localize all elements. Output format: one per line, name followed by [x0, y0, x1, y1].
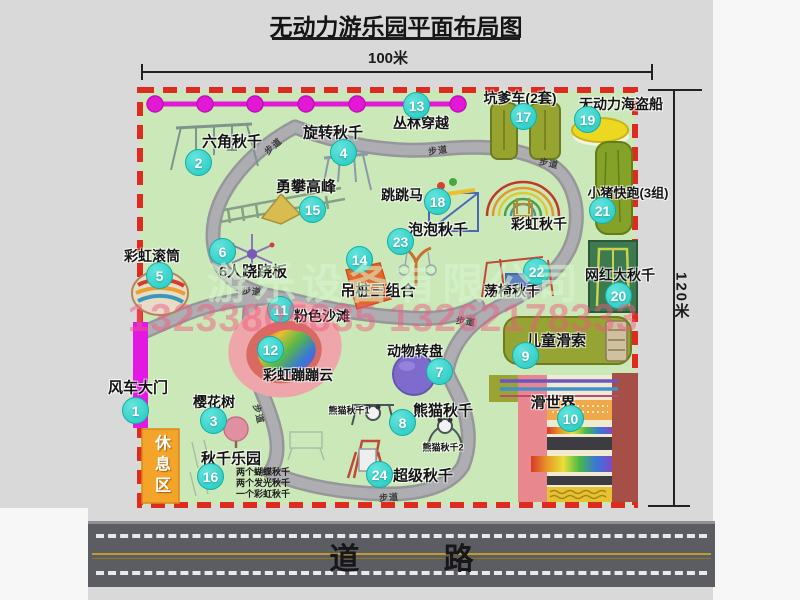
attraction-label-2: 六角秋千: [202, 131, 262, 152]
extra-label-1: 熊猫秋千1: [328, 404, 369, 417]
footpath-label-1: 步道: [427, 142, 449, 158]
attraction-badge-11: 11: [267, 296, 294, 323]
attraction-badge-19: 19: [574, 106, 601, 133]
attraction-badge-8: 8: [389, 409, 416, 436]
extra-label-2: 熊猫秋千2: [422, 441, 463, 454]
attraction-badge-3: 3: [200, 407, 227, 434]
footpath-label-4: 步道: [455, 313, 477, 329]
swing-park-note-0: 两个蝴蝶秋千: [236, 467, 290, 478]
attraction-badge-22: 22: [523, 258, 550, 285]
attraction-badge-21: 21: [589, 197, 616, 224]
attraction-badge-17: 17: [510, 103, 537, 130]
swing-park-note-1: 两个发光秋千: [236, 478, 290, 489]
extra-label-0: 彩虹秋千: [511, 214, 567, 234]
attraction-label-4: 旋转秋千: [303, 122, 363, 143]
attraction-label-1: 风车大门: [108, 377, 168, 398]
attraction-label-6: 6人跷跷板: [219, 261, 287, 282]
swing-park-note-2: 一个彩虹秋千: [236, 489, 290, 500]
attraction-badge-13: 13: [403, 92, 430, 119]
attraction-badge-2: 2: [185, 149, 212, 176]
attraction-label-15: 勇攀高峰: [276, 176, 336, 197]
attraction-badge-12: 12: [257, 336, 284, 363]
footpath-label-6: 步道: [379, 490, 400, 504]
attraction-label-11: 粉色沙滩: [294, 306, 350, 326]
attraction-badge-6: 6: [209, 238, 236, 265]
attraction-label-8: 熊猫秋千: [413, 400, 473, 421]
attraction-badge-9: 9: [512, 342, 539, 369]
attraction-badge-16: 16: [197, 463, 224, 490]
park-plan-screenshot: 无动力游乐园平面布局图 100米 120米 休息区 两个蝴蝶秋千两个发光秋千一个…: [0, 0, 800, 600]
attraction-badge-24: 24: [366, 461, 393, 488]
attraction-badge-1: 1: [122, 397, 149, 424]
attraction-badge-4: 4: [330, 139, 357, 166]
map-overlay: 两个蝴蝶秋千两个发光秋千一个彩虹秋千 风车大门1六角秋千2樱花树3旋转秋千4彩虹…: [0, 0, 800, 600]
attraction-label-12: 彩虹蹦蹦云: [263, 365, 333, 385]
attraction-label-14: 吊桩三组合: [340, 280, 415, 301]
attraction-badge-14: 14: [346, 246, 373, 273]
footpath-label-0: 步道: [261, 134, 285, 157]
attraction-badge-10: 10: [557, 405, 584, 432]
attraction-badge-5: 5: [146, 262, 173, 289]
footpath-label-3: 步道: [242, 284, 263, 298]
attraction-label-18: 跳跳马: [381, 185, 423, 205]
attraction-label-23: 泡泡秋千: [408, 219, 468, 240]
footpath-label-5: 步道: [250, 403, 268, 426]
attraction-badge-20: 20: [605, 282, 632, 309]
swing-park-notes: 两个蝴蝶秋千两个发光秋千一个彩虹秋千: [236, 467, 290, 500]
attraction-label-24: 超级秋千: [393, 465, 453, 486]
attraction-badge-18: 18: [424, 188, 451, 215]
footpath-label-2: 步道: [538, 155, 560, 172]
attraction-badge-15: 15: [299, 196, 326, 223]
attraction-badge-7: 7: [426, 358, 453, 385]
attraction-badge-23: 23: [387, 228, 414, 255]
